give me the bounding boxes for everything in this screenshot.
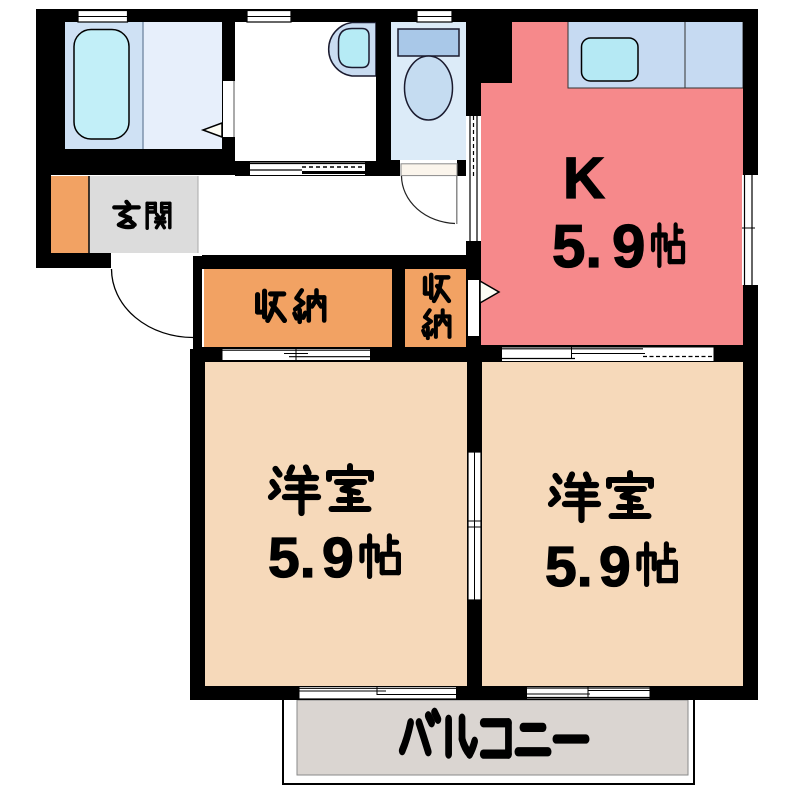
svg-text:K: K <box>563 146 605 211</box>
svg-text:9: 9 <box>612 213 645 280</box>
svg-text:9: 9 <box>599 535 631 599</box>
svg-text:5.: 5. <box>545 535 593 599</box>
svg-text:5.: 5. <box>552 213 602 280</box>
svg-text:9: 9 <box>322 526 354 590</box>
svg-text:5.: 5. <box>268 526 316 590</box>
